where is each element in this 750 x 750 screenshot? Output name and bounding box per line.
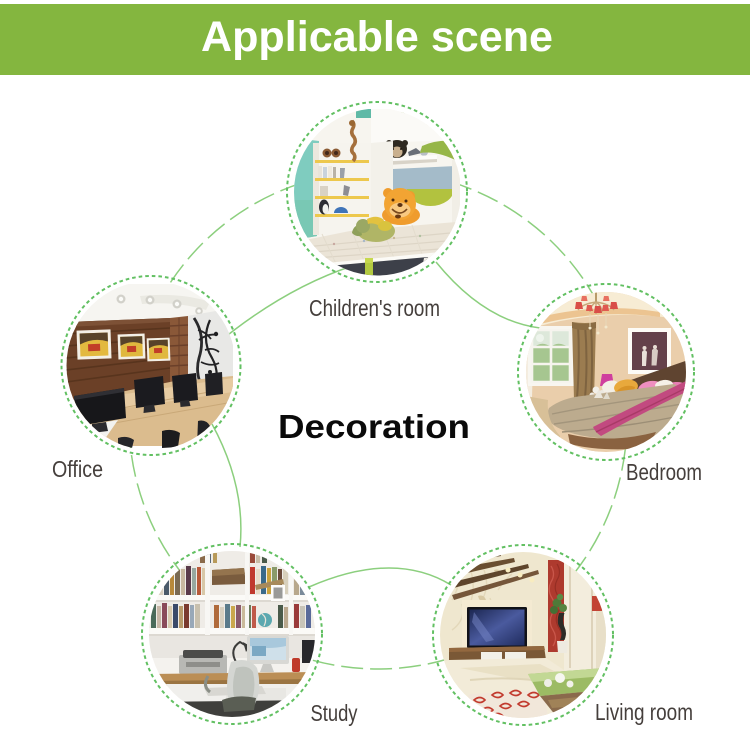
svg-text:Living room: Living room: [595, 699, 693, 725]
svg-text:Applicable scene: Applicable scene: [201, 13, 553, 61]
svg-text:Office: Office: [52, 456, 103, 482]
svg-text:Decoration: Decoration: [278, 408, 470, 445]
svg-text:Children's room: Children's room: [309, 295, 440, 321]
svg-text:Bedroom: Bedroom: [626, 459, 702, 485]
svg-text:Study: Study: [311, 700, 358, 726]
